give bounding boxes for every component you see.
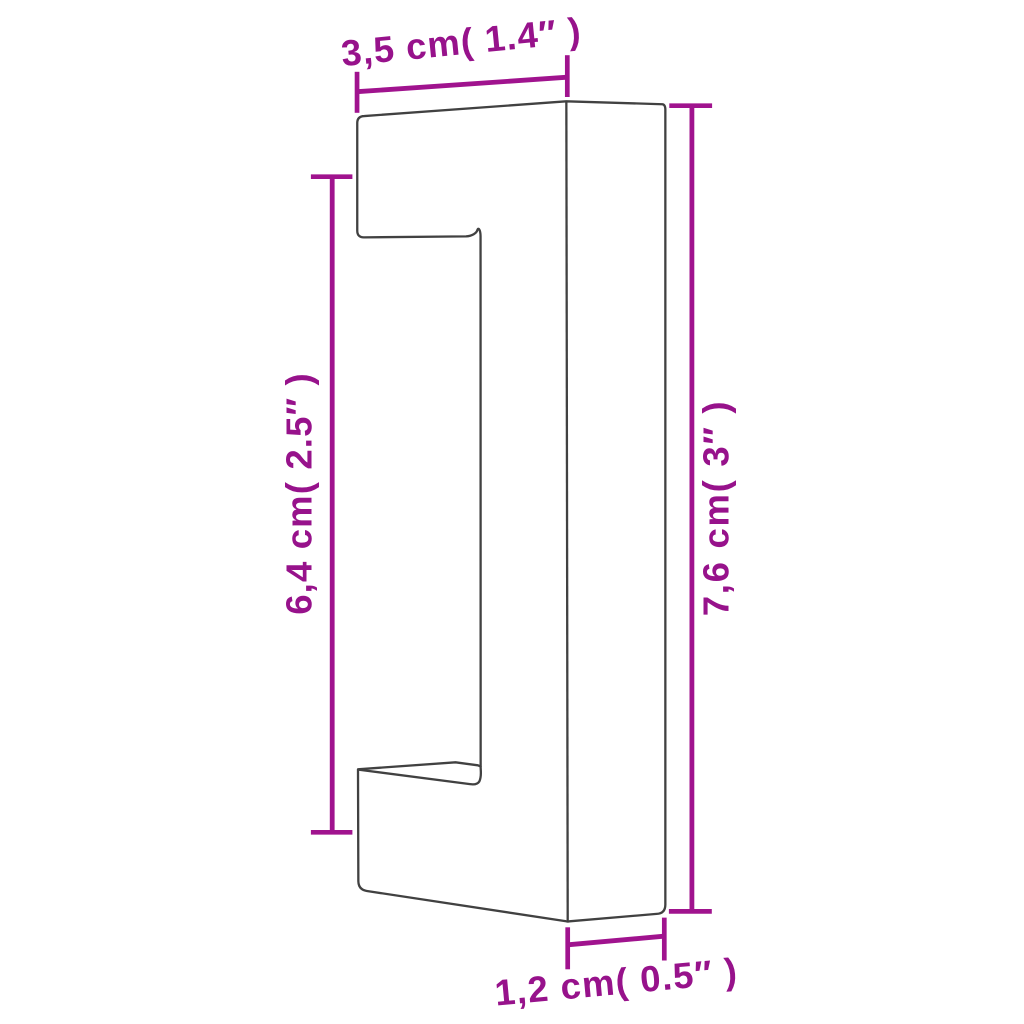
svg-text:7,6 cm( 3″ ): 7,6 cm( 3″ ) (696, 400, 737, 616)
svg-text:6,4 cm( 2.5″ ): 6,4 cm( 2.5″ ) (278, 372, 319, 615)
